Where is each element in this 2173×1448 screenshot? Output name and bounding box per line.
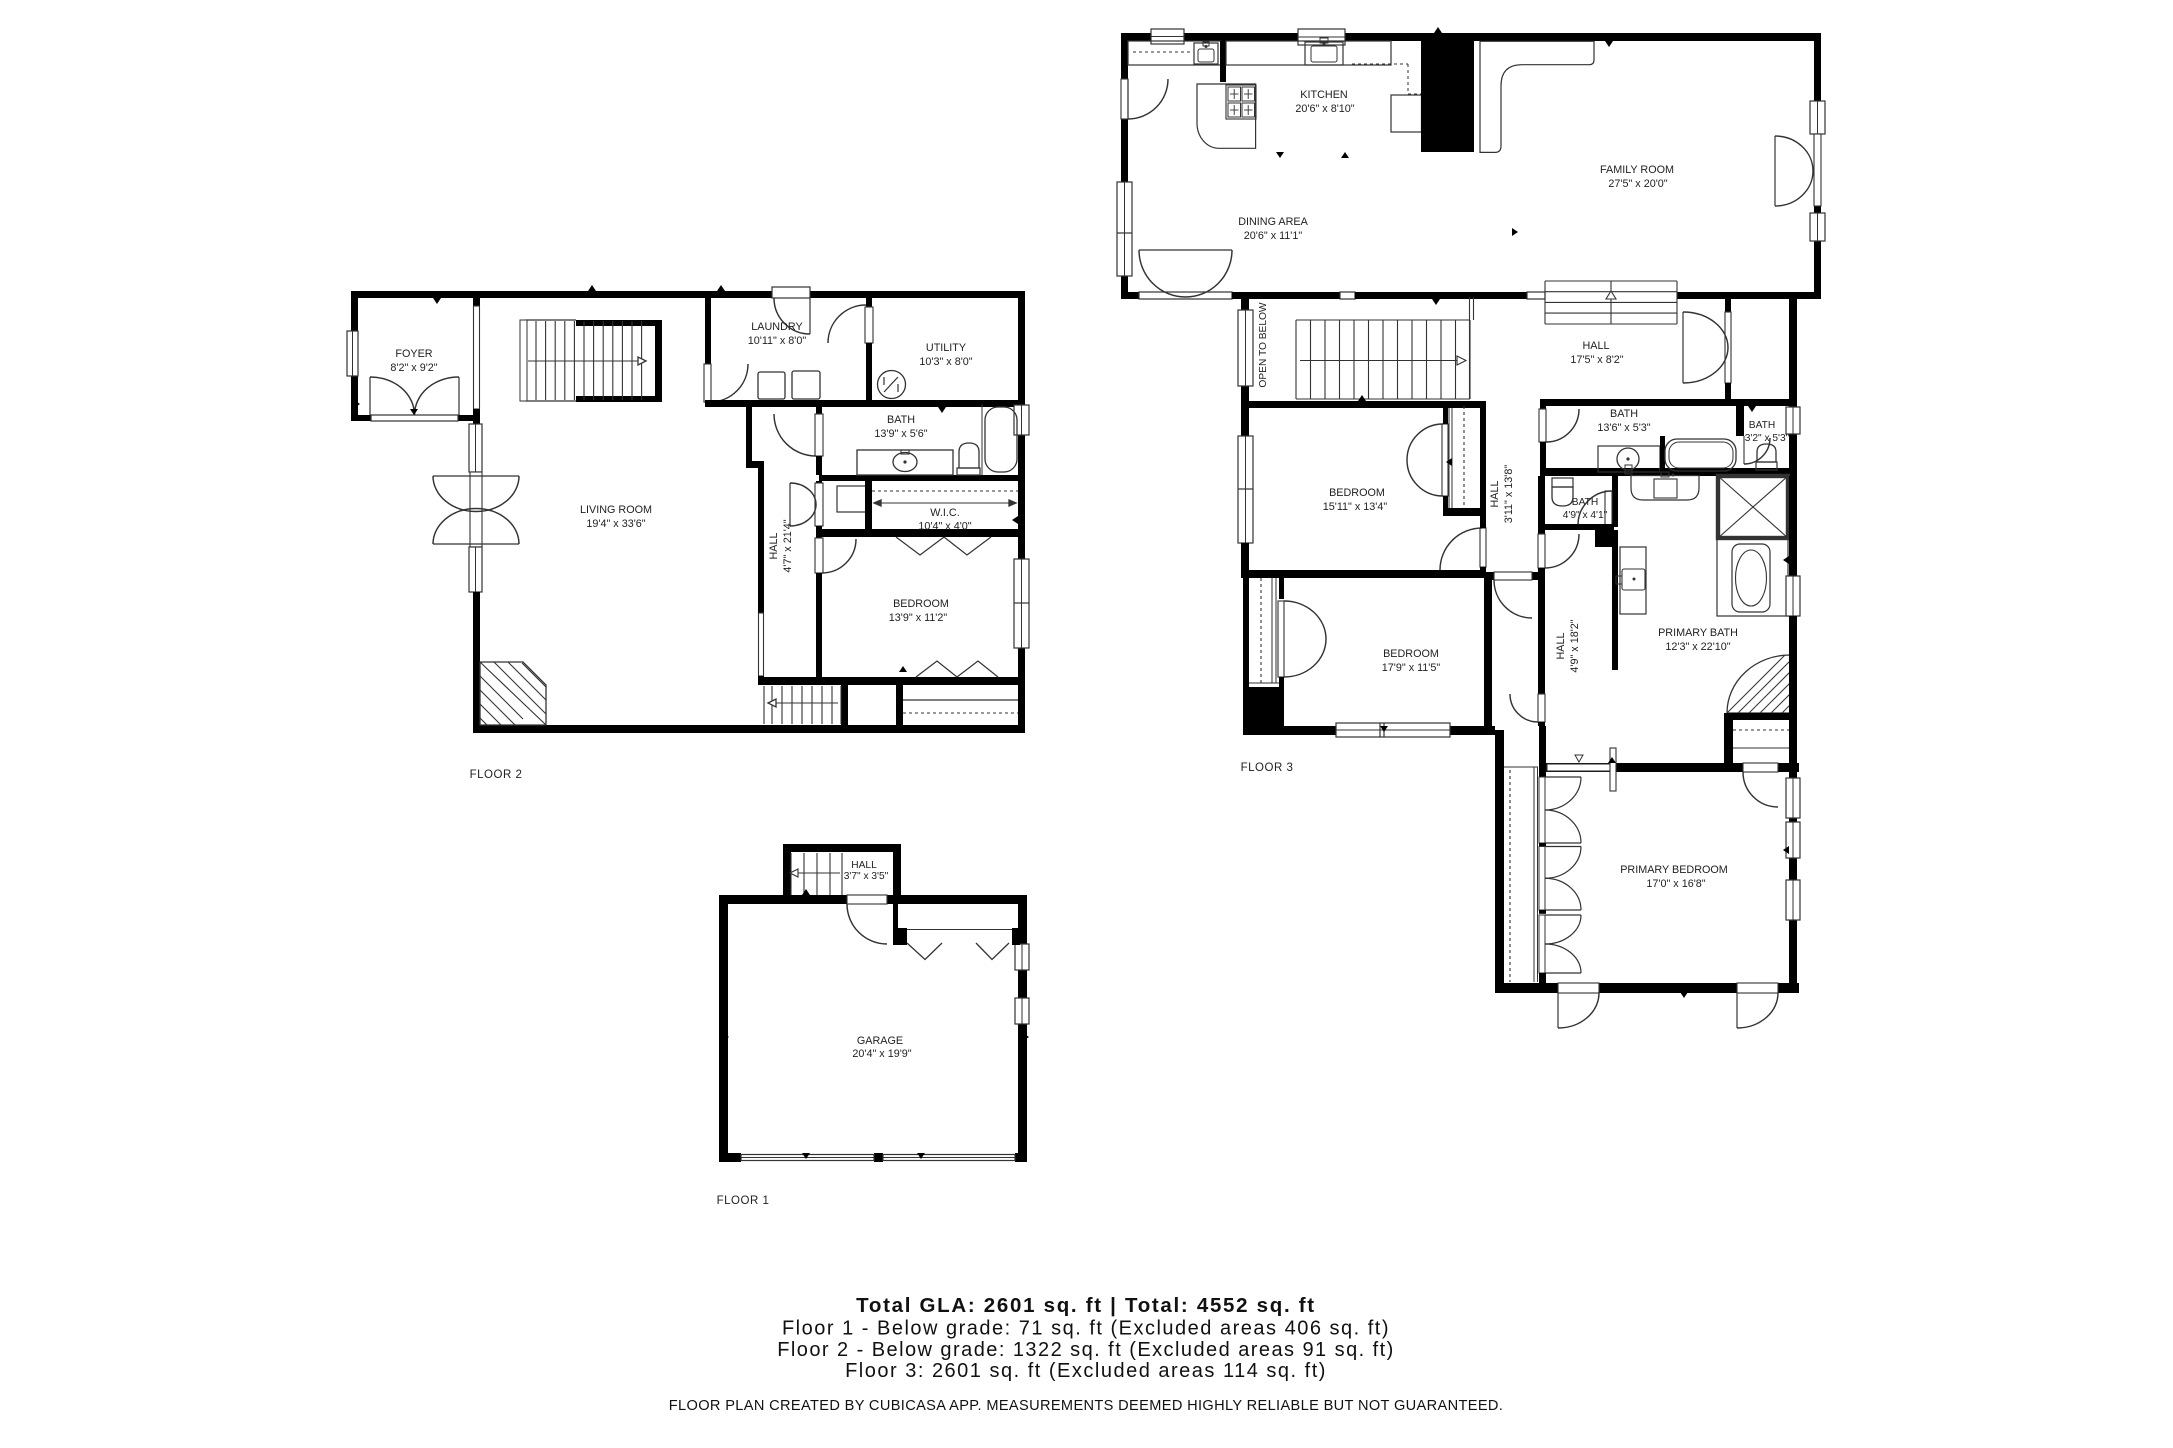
svg-text:12'3" x 22'10": 12'3" x 22'10" [1665,641,1730,653]
svg-text:10'3" x 8'0": 10'3" x 8'0" [919,356,972,368]
svg-text:15'11" x 13'4": 15'11" x 13'4" [1323,501,1388,513]
svg-text:3'2" x 5'3": 3'2" x 5'3" [1745,433,1790,444]
svg-text:4'7" x 21'4": 4'7" x 21'4" [782,519,794,572]
svg-text:17'9" x 11'5": 17'9" x 11'5" [1382,662,1441,674]
svg-text:3'7" x 3'5": 3'7" x 3'5" [844,871,889,882]
svg-text:KITCHEN: KITCHEN [1300,89,1347,101]
svg-text:FLOOR 1: FLOOR 1 [717,1195,770,1207]
svg-text:PRIMARY BATH: PRIMARY BATH [1658,627,1738,639]
svg-text:Total GLA: 2601 sq. ft | Total: Total GLA: 2601 sq. ft | Total: 4552 sq.… [856,1294,1316,1317]
svg-text:Floor 1 - Below grade: 71 sq.: Floor 1 - Below grade: 71 sq. ft (Exclud… [782,1318,1390,1340]
svg-text:HALL: HALL [1582,340,1609,352]
svg-text:HALL: HALL [1555,632,1567,659]
svg-text:13'9" x 5'6": 13'9" x 5'6" [874,428,927,440]
svg-text:HALL: HALL [1489,480,1501,507]
svg-text:FLOOR PLAN CREATED BY CUBICASA: FLOOR PLAN CREATED BY CUBICASA APP. MEAS… [669,1398,1503,1414]
svg-text:20'4" x 19'9": 20'4" x 19'9" [852,1048,911,1060]
svg-text:FLOOR 2: FLOOR 2 [470,769,523,781]
svg-text:4'9" x 18'2": 4'9" x 18'2" [1569,619,1581,672]
svg-text:BEDROOM: BEDROOM [1329,487,1385,499]
svg-text:Floor 3: 2601 sq. ft (Excluded: Floor 3: 2601 sq. ft (Excluded areas 114… [845,1360,1327,1382]
svg-text:BEDROOM: BEDROOM [893,598,949,610]
svg-text:HALL: HALL [768,532,780,559]
svg-text:13'9" x 11'2": 13'9" x 11'2" [889,612,948,624]
svg-text:20'6" x 11'1": 20'6" x 11'1" [1244,230,1303,242]
svg-text:FOYER: FOYER [395,348,432,360]
svg-text:FLOOR 3: FLOOR 3 [1241,762,1294,774]
svg-text:19'4" x 33'6": 19'4" x 33'6" [586,518,645,530]
svg-text:10'4" x 4'0": 10'4" x 4'0" [918,521,971,533]
svg-text:LIVING ROOM: LIVING ROOM [580,504,652,516]
svg-text:17'5" x 8'2": 17'5" x 8'2" [1570,354,1623,366]
svg-text:PRIMARY BEDROOM: PRIMARY BEDROOM [1620,864,1728,876]
svg-text:BATH: BATH [887,414,915,426]
svg-text:OPEN TO BELOW: OPEN TO BELOW [1258,302,1269,387]
svg-text:DINING AREA: DINING AREA [1238,216,1308,228]
svg-text:20'6" x 8'10": 20'6" x 8'10" [1295,103,1354,115]
svg-text:17'0" x 16'8": 17'0" x 16'8" [1646,878,1705,890]
svg-text:27'5" x 20'0": 27'5" x 20'0" [1608,178,1667,190]
svg-text:LAUNDRY: LAUNDRY [751,321,802,333]
svg-text:3'11" x 13'8": 3'11" x 13'8" [1503,465,1515,524]
svg-text:FAMILY ROOM: FAMILY ROOM [1600,164,1674,176]
svg-text:UTILITY: UTILITY [926,342,966,354]
svg-text:BATH: BATH [1610,408,1638,420]
svg-text:BATH: BATH [1749,420,1775,431]
svg-text:GARAGE: GARAGE [857,1035,903,1047]
svg-text:HALL: HALL [851,860,877,871]
svg-text:10'11" x 8'0": 10'11" x 8'0" [748,335,807,347]
svg-text:BEDROOM: BEDROOM [1383,648,1439,660]
svg-text:BATH: BATH [1572,497,1598,508]
svg-text:Floor 2 - Below grade: 1322 sq: Floor 2 - Below grade: 1322 sq. ft (Excl… [777,1339,1395,1361]
svg-text:13'6" x 5'3": 13'6" x 5'3" [1597,422,1650,434]
svg-text:8'2" x 9'2": 8'2" x 9'2" [390,362,437,374]
svg-text:W.I.C.: W.I.C. [930,507,959,519]
svg-text:4'9" x 4'1": 4'9" x 4'1" [1563,510,1608,521]
